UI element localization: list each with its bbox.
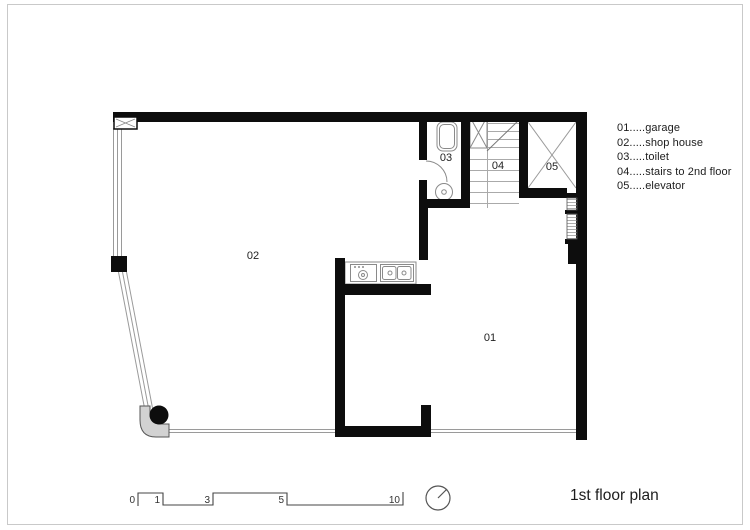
scale-tick-5: 5: [278, 495, 284, 506]
scale-tick-1: 1: [154, 495, 160, 506]
scale-tick-10: 10: [389, 495, 401, 506]
room-label-elevator: 05: [546, 161, 558, 173]
wall-top: [113, 112, 587, 122]
stove-burner-dot: [362, 274, 365, 277]
north-indicator-icon: [426, 486, 450, 510]
toilet-wc: [436, 184, 453, 201]
wall-right: [576, 112, 587, 440]
sink-tap-left: [388, 271, 392, 275]
wall-door-separator-1: [565, 193, 577, 198]
wall-toilet-left-upper: [419, 120, 427, 160]
toilet-door-arc: [426, 161, 447, 182]
kitchen-counter: [345, 262, 416, 284]
wall-bottom-pocket: [335, 426, 431, 437]
floor-plan-page: 02 01 03 04 05 0 1 3 5 10 01.....garage …: [0, 0, 750, 530]
legend-item-garage: 01.....garage: [617, 121, 732, 136]
wall-toilet-stairs-divider: [461, 112, 470, 208]
wall-pocket-stub: [421, 405, 431, 437]
room-label-shop-house: 02: [247, 250, 259, 262]
wall-door-separator-3: [565, 239, 577, 244]
floor-plan-drawing: 02 01 03 04 05 0 1 3 5 10: [0, 0, 750, 530]
legend-item-shop-house: 02.....shop house: [617, 136, 732, 151]
room-label-garage: 01: [484, 332, 496, 344]
scale-bar: 0 1 3 5 10: [129, 492, 403, 506]
room-label-toilet: 03: [440, 152, 452, 164]
legend-item-elevator: 05.....elevator: [617, 179, 732, 194]
bathtub-inner: [440, 125, 455, 149]
door-panel-upper: [567, 198, 577, 210]
wall-elevator-bottom: [519, 188, 567, 198]
column-square: [111, 256, 127, 272]
legend-item-stairs: 04.....stairs to 2nd floor: [617, 165, 732, 180]
window-symbol: [114, 117, 137, 129]
scale-tick-0: 0: [129, 495, 135, 506]
room-label-stairs: 04: [492, 160, 504, 172]
round-column: [150, 406, 169, 425]
toilet-wc-dot: [442, 190, 447, 195]
legend-item-toilet: 03.....toilet: [617, 150, 732, 165]
page-title: 1st floor plan: [570, 487, 659, 505]
sink-tap-right: [402, 271, 406, 275]
wall-passage-left: [335, 258, 345, 437]
wall-elevator-left: [519, 112, 528, 198]
wall-door-separator-2: [565, 210, 577, 214]
wall-corridor-right: [419, 205, 428, 260]
legend: 01.....garage 02.....shop house 03.....t…: [617, 121, 732, 194]
wall-kitchen-back: [335, 284, 431, 295]
right-wall-door-panels: [567, 198, 577, 239]
door-panel-lower: [567, 214, 577, 239]
scale-tick-3: 3: [204, 495, 210, 506]
elevator-cross: [528, 122, 576, 188]
wall-right-thick-step: [568, 244, 578, 264]
